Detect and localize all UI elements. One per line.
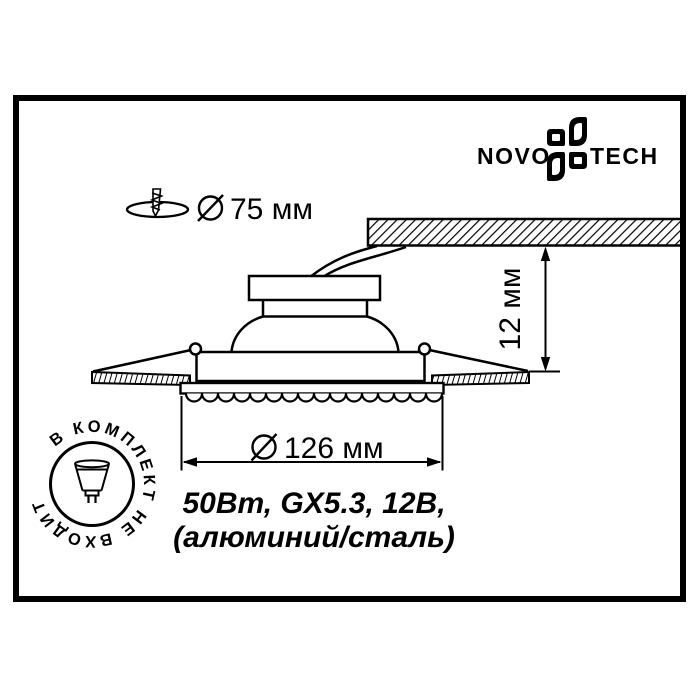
lamp-fixture: [93, 276, 528, 381]
arrowhead-right: [427, 457, 442, 466]
trim-diameter-label: 126 мм: [284, 432, 384, 465]
arrowhead-down: [541, 357, 550, 372]
arrowhead-up: [541, 247, 550, 262]
spec-line-2: (алюминий/сталь): [173, 521, 455, 554]
mr16-lamp-icon: [75, 460, 109, 503]
cutout-diameter-label: 75 мм: [230, 193, 313, 226]
product-diagram: 12 мм 126 мм 75 мм 50Вт, GX5.3, 12В, (ал…: [0, 0, 700, 700]
ceiling-wedge-left: [92, 372, 190, 385]
logo-text-tech: TECH: [590, 143, 659, 169]
diagram-svg: 12 мм 126 мм 75 мм 50Вт, GX5.3, 12В, (ал…: [0, 0, 700, 700]
ceiling-wedge-right: [432, 372, 529, 385]
terminal-box: [249, 276, 380, 300]
recess-depth-dimension: [529, 247, 560, 372]
cutout-hole-icon: [127, 189, 188, 217]
badge-circle: [51, 443, 134, 526]
spec-line-1: 50Вт, GX5.3, 12В,: [182, 487, 445, 520]
clip-pivot-right: [419, 344, 430, 355]
novotech-pinwheel-icon: [547, 117, 587, 181]
spring-clip-right: [425, 349, 529, 371]
wire: [310, 246, 406, 277]
housing-neck: [263, 300, 367, 317]
ceiling-section: [368, 219, 683, 246]
diameter-icon: [198, 195, 223, 221]
spring-clip-left: [93, 349, 196, 372]
lamp-not-included-badge: В КОМПЛЕКТ НЕ ВХОДИТ: [28, 418, 158, 551]
bead-row: [186, 394, 442, 402]
badge-ring-text: В КОМПЛЕКТ НЕ ВХОДИТ: [28, 418, 158, 551]
arrowhead-left: [183, 457, 198, 466]
logo-text-novo: NOVO: [477, 143, 551, 169]
clip-pivot-left: [190, 344, 201, 355]
flange: [197, 352, 425, 381]
novotech-logo: NOVO TECH: [477, 117, 659, 181]
diameter-icon: [252, 434, 277, 461]
trim-ring: [181, 383, 444, 394]
bell-housing: [232, 317, 399, 353]
recess-depth-label: 12 мм: [494, 268, 527, 351]
